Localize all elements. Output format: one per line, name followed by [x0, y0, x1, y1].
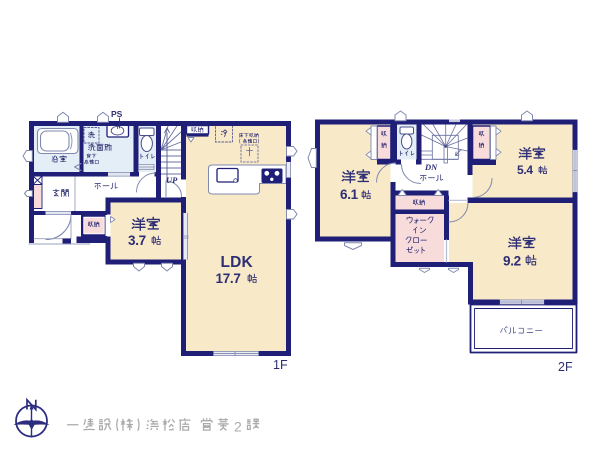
svg-text:1F: 1F — [273, 358, 288, 372]
svg-text:2: 2 — [234, 419, 242, 435]
svg-text:17.7: 17.7 — [216, 271, 241, 286]
svg-text:PS: PS — [111, 109, 123, 119]
svg-text:2F: 2F — [558, 360, 573, 374]
svg-text:LDK: LDK — [221, 254, 254, 271]
svg-text:6.1: 6.1 — [340, 187, 359, 202]
svg-text:9.2: 9.2 — [503, 254, 521, 269]
svg-text:5.4: 5.4 — [517, 163, 533, 177]
svg-text:UP: UP — [166, 175, 178, 185]
svg-text:3.7: 3.7 — [128, 233, 146, 248]
svg-text:DN: DN — [424, 162, 438, 172]
